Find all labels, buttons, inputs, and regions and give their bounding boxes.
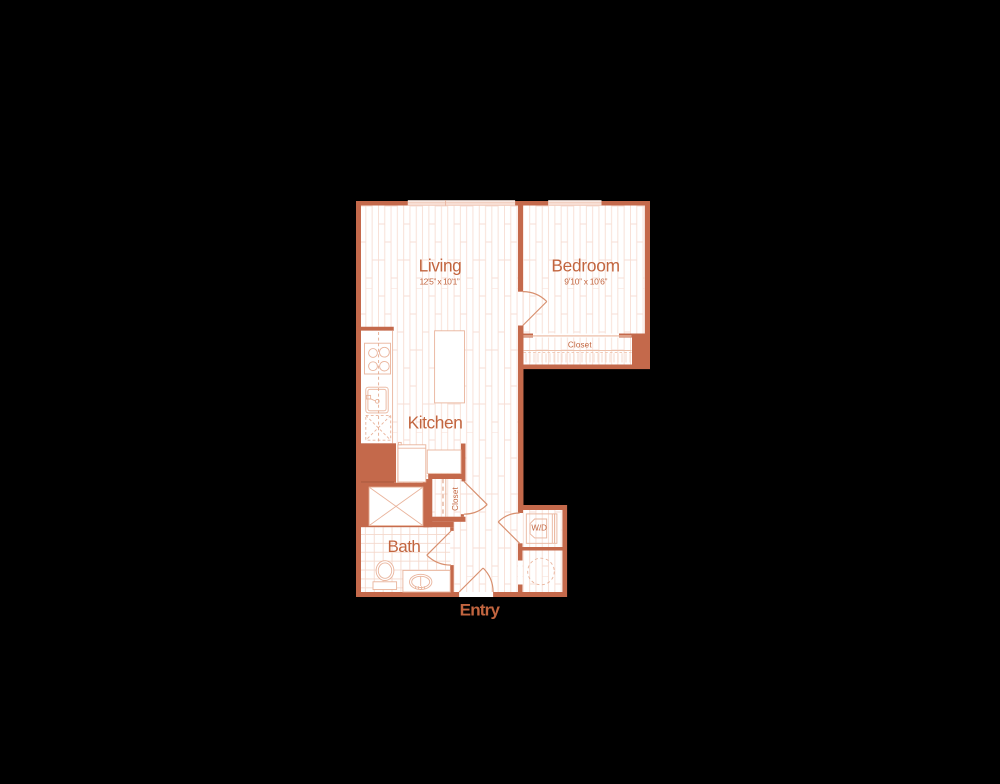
svg-text:9’10” x 10’6”: 9’10” x 10’6” [564,276,607,286]
svg-text:Closet: Closet [451,486,460,510]
svg-text:Entry: Entry [460,601,501,620]
svg-text:W/D: W/D [531,523,547,532]
svg-text:Bath: Bath [388,537,421,556]
svg-text:12’5” x 10’1”: 12’5” x 10’1” [419,276,459,286]
svg-text:Kitchen: Kitchen [408,413,463,433]
svg-text:Living: Living [419,256,462,276]
svg-text:Bedroom: Bedroom [551,256,619,276]
svg-text:Closet: Closet [568,341,592,350]
